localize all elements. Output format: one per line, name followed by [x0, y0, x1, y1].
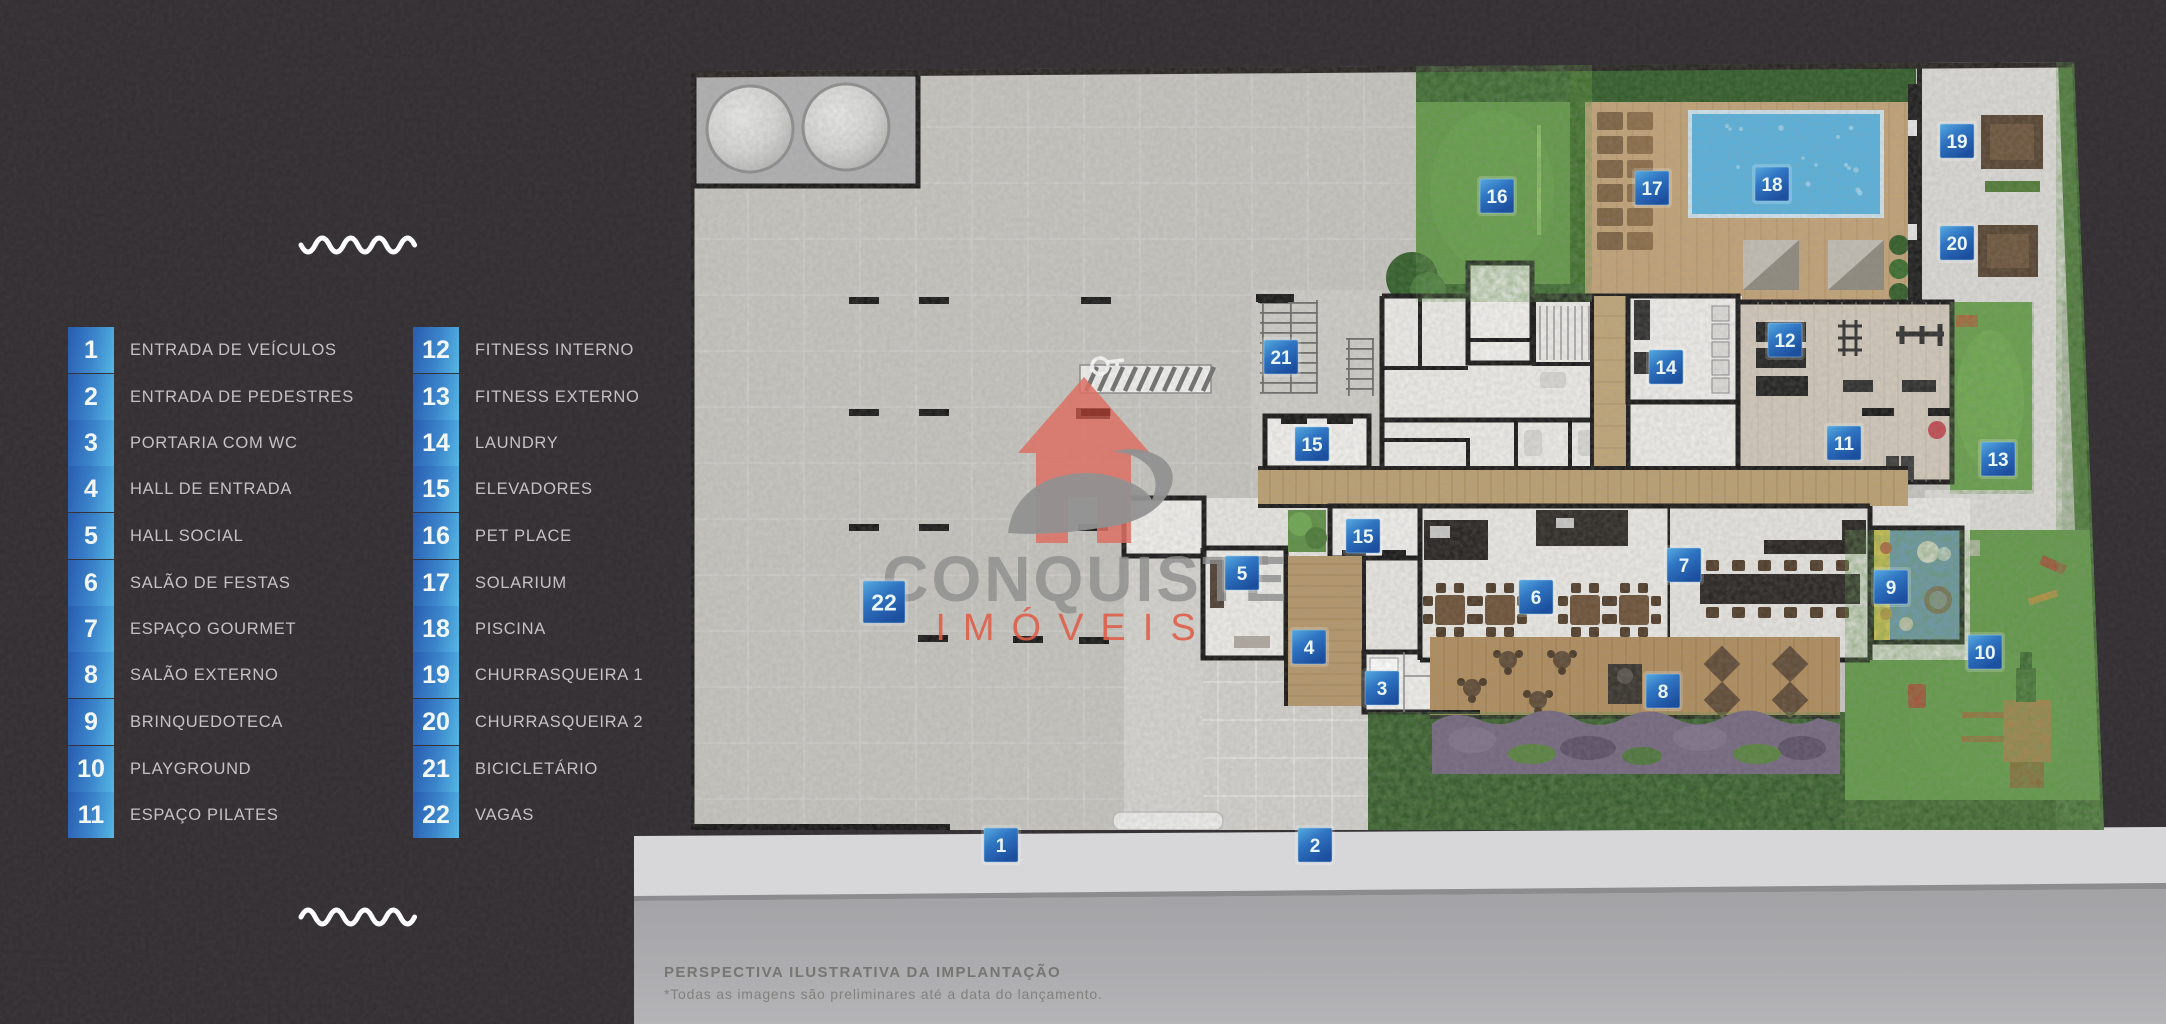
svg-text:9: 9: [1886, 578, 1897, 599]
svg-text:18: 18: [1761, 175, 1782, 196]
svg-text:10: 10: [1974, 643, 1995, 664]
svg-text:12: 12: [1774, 331, 1795, 352]
svg-text:2: 2: [1310, 836, 1321, 857]
svg-text:IMÓVEIS: IMÓVEIS: [935, 606, 1212, 649]
svg-text:19: 19: [1946, 132, 1967, 153]
svg-text:15: 15: [1301, 435, 1323, 456]
svg-text:4: 4: [1304, 638, 1315, 659]
svg-text:22: 22: [871, 589, 897, 615]
svg-text:20: 20: [1946, 234, 1967, 255]
svg-text:17: 17: [1641, 179, 1662, 200]
svg-text:16: 16: [1486, 187, 1507, 208]
svg-text:6: 6: [1531, 588, 1542, 609]
svg-text:21: 21: [1270, 348, 1292, 369]
svg-text:7: 7: [1679, 556, 1690, 577]
svg-text:5: 5: [1237, 564, 1248, 585]
svg-text:14: 14: [1655, 358, 1677, 379]
svg-text:1: 1: [996, 836, 1007, 857]
svg-text:11: 11: [1834, 434, 1855, 455]
svg-text:8: 8: [1658, 682, 1669, 703]
svg-text:13: 13: [1987, 450, 2008, 471]
svg-text:15: 15: [1352, 527, 1374, 548]
svg-text:3: 3: [1377, 679, 1388, 700]
